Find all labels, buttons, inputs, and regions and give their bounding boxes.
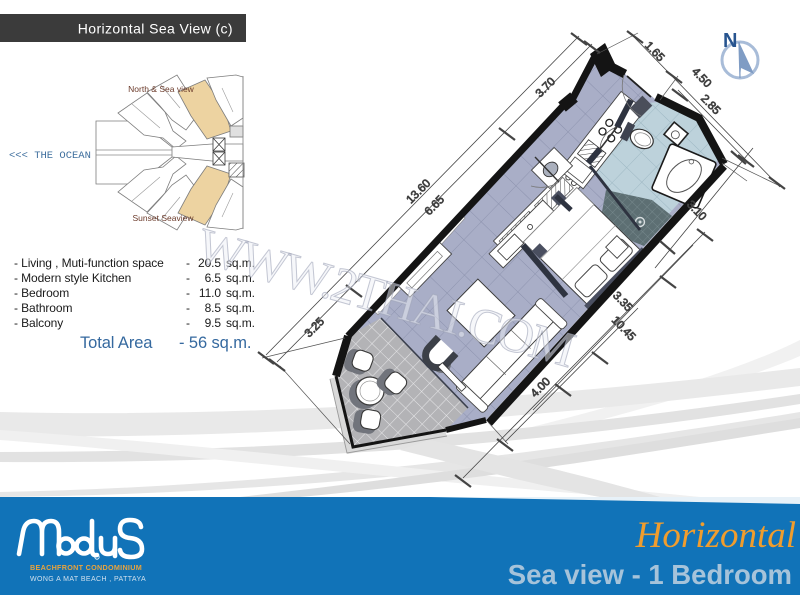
svg-text:-: - xyxy=(186,301,190,315)
svg-text:-: - xyxy=(186,256,190,270)
svg-text:sq.m.: sq.m. xyxy=(226,301,255,315)
svg-text:Horizontal: Horizontal xyxy=(635,515,796,556)
svg-text:Sunset Seaview: Sunset Seaview xyxy=(133,213,195,223)
svg-text:Sea view - 1 Bedroom: Sea view - 1 Bedroom xyxy=(508,559,792,590)
svg-text:- Modern style Kitchen: - Modern style Kitchen xyxy=(14,271,131,285)
svg-text:sq.m.: sq.m. xyxy=(226,286,255,300)
svg-text:BEACHFRONT CONDOMINIUM: BEACHFRONT CONDOMINIUM xyxy=(30,563,142,572)
svg-text:-: - xyxy=(186,316,190,330)
svg-text:-: - xyxy=(186,271,190,285)
svg-text:Horizontal Sea View (c): Horizontal Sea View (c) xyxy=(78,21,233,37)
svg-text:- 56 sq.m.: - 56 sq.m. xyxy=(179,334,251,352)
svg-text:- Balcony: - Balcony xyxy=(14,316,63,330)
svg-text:9.5: 9.5 xyxy=(205,316,222,330)
svg-text:- Bathroom: - Bathroom xyxy=(14,301,72,315)
svg-text:sq.m.: sq.m. xyxy=(226,316,255,330)
svg-text:<<< THE OCEAN: <<< THE OCEAN xyxy=(9,150,91,162)
svg-text:-: - xyxy=(186,286,190,300)
svg-text:11.0: 11.0 xyxy=(199,286,221,300)
svg-text:8.5: 8.5 xyxy=(205,301,222,315)
svg-text:N: N xyxy=(723,30,737,52)
svg-text:- Bedroom: - Bedroom xyxy=(14,286,69,300)
svg-text:WONG A MAT BEACH , PATTAYA: WONG A MAT BEACH , PATTAYA xyxy=(30,576,146,583)
svg-text:North & Sea view: North & Sea view xyxy=(128,84,195,94)
svg-text:- Living , Muti-function spac: - Living , Muti-function space xyxy=(14,256,164,270)
svg-text:Total Area: Total Area xyxy=(80,334,153,352)
